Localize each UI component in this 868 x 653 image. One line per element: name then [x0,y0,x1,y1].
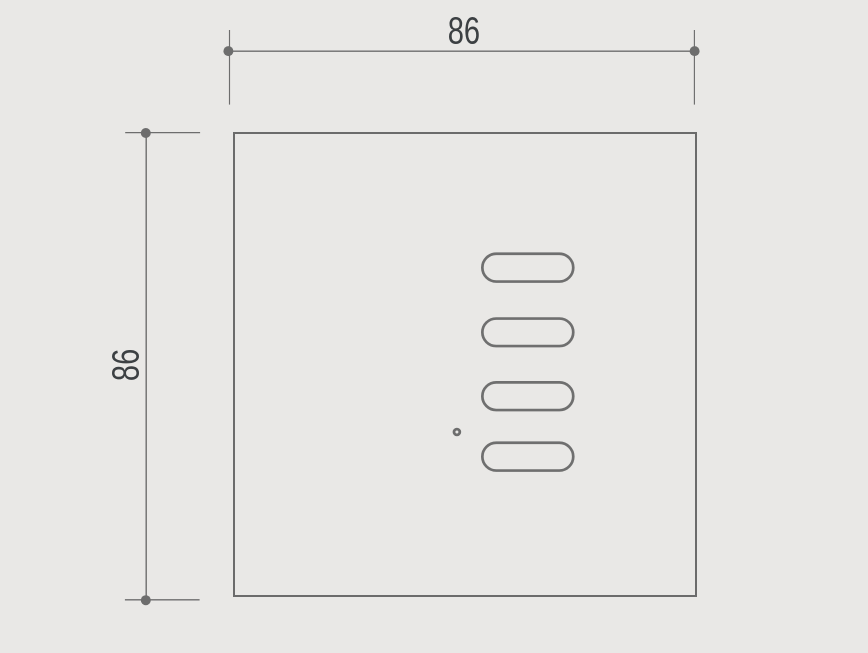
svg-text:86: 86 [105,349,148,381]
svg-text:86: 86 [448,10,480,53]
